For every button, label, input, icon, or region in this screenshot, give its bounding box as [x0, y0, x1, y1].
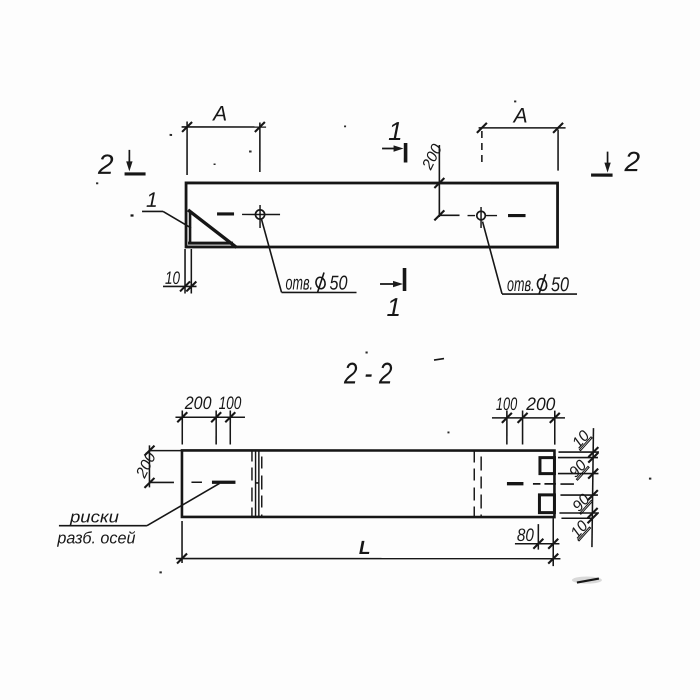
svg-text:200: 200	[419, 141, 446, 173]
svg-text:200: 200	[184, 393, 212, 413]
svg-text:200: 200	[525, 394, 555, 414]
svg-text:A: A	[211, 102, 227, 125]
svg-text:200: 200	[133, 450, 160, 482]
svg-text:100: 100	[219, 393, 242, 413]
svg-text:A: A	[512, 105, 528, 128]
svg-text:риски: риски	[69, 508, 119, 526]
svg-text:2: 2	[624, 146, 641, 177]
svg-text:разб. осей: разб. осей	[56, 529, 135, 547]
svg-text:1: 1	[146, 189, 158, 212]
svg-text:1: 1	[388, 116, 402, 146]
svg-text:50: 50	[330, 272, 348, 294]
svg-text:90: 90	[566, 457, 590, 481]
svg-text:100: 100	[496, 394, 517, 414]
svg-text:отв.: отв.	[286, 272, 314, 294]
svg-text:отв.: отв.	[507, 274, 535, 296]
svg-text:80: 80	[517, 525, 534, 545]
svg-text:10: 10	[569, 427, 593, 451]
svg-text:10: 10	[568, 517, 592, 541]
svg-text:50: 50	[551, 274, 569, 296]
svg-text:2 - 2: 2 - 2	[343, 357, 393, 390]
svg-text:2: 2	[97, 149, 114, 180]
svg-text:1: 1	[387, 292, 401, 322]
svg-text:L: L	[359, 538, 371, 559]
svg-text:10: 10	[165, 268, 180, 288]
